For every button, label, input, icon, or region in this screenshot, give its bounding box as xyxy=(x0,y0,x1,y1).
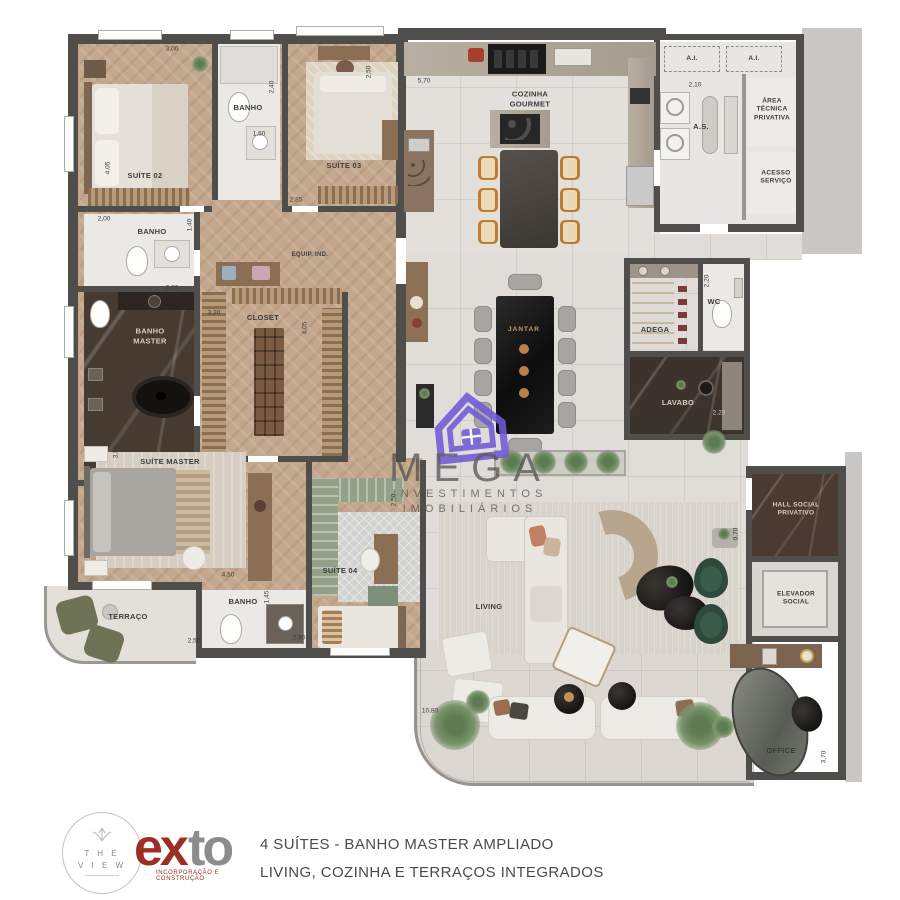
exto-logo: ex to INCORPORAÇÃO E CONSTRUÇÃO xyxy=(134,818,254,882)
suite02-headboard xyxy=(84,82,92,194)
closet-rack-right xyxy=(322,308,342,456)
label-adega: ADEGA xyxy=(641,325,670,335)
banhobottom-sink xyxy=(278,616,293,631)
dim-banhomaster-width: 2,60 xyxy=(166,285,179,292)
label-ai-2: A.I. xyxy=(748,55,759,63)
exto-logo-ex: ex xyxy=(134,818,186,878)
dim-banho02-width: 1,60 xyxy=(253,131,266,138)
door-suite03 xyxy=(292,206,318,212)
label-suite04: SUÍTE 04 xyxy=(323,566,358,576)
exto-subtitle: INCORPORAÇÃO E CONSTRUÇÃO xyxy=(156,870,254,882)
banhomaster-sink xyxy=(148,295,161,308)
adega-basin-2 xyxy=(660,266,670,276)
dining-chair-r3 xyxy=(558,370,576,396)
equip-item-2 xyxy=(252,266,270,280)
banhomaster-toilet xyxy=(90,300,110,328)
banholeft-sink xyxy=(164,246,180,262)
wall-elevator-bottom xyxy=(752,636,838,642)
dining-chair-l1 xyxy=(474,306,492,332)
living-console-vase-1 xyxy=(410,296,423,309)
kitchen-pot xyxy=(468,48,484,62)
label-equip: EQUIP. IND. xyxy=(292,252,329,260)
label-suite-master: SUÍTE MASTER xyxy=(140,457,199,467)
door-hall xyxy=(746,478,752,510)
kitchen-cooktop-burners xyxy=(505,118,535,140)
dim-banholeft-width: 2,00 xyxy=(98,216,111,223)
exterior-strip-right xyxy=(845,452,862,782)
label-cozinha: COZINHA GOURMET xyxy=(510,89,550,109)
caption-line-1: 4 SUÍTES - BANHO MASTER AMPLIADO xyxy=(260,836,554,853)
banho02-shower xyxy=(220,46,278,84)
window-master-bottom xyxy=(92,580,152,590)
adega-bottle-column xyxy=(678,284,687,344)
lavabo-basin xyxy=(698,380,714,396)
window-banho02-top xyxy=(230,30,274,40)
exterior-block-top-right xyxy=(802,28,862,254)
door-closet xyxy=(248,456,278,462)
kitchen-appliance-dots xyxy=(408,160,430,186)
wall-office-bottom xyxy=(746,772,846,780)
dim-wc-depth: 2,20 xyxy=(704,275,711,288)
terrace-table-2 xyxy=(608,682,636,710)
suite02-wardrobe xyxy=(88,188,190,206)
label-jantar: JANTAR xyxy=(508,326,540,334)
wall-closet-right xyxy=(342,292,348,462)
label-living: LIVING xyxy=(476,602,503,612)
window-suite02-top xyxy=(98,30,162,40)
dim-cozinha-width: 5,70 xyxy=(418,78,431,85)
wall-suite02-banho xyxy=(212,44,218,200)
dining-chair-l3 xyxy=(474,370,492,396)
planter-bush-3 xyxy=(564,450,588,474)
passage-service xyxy=(700,224,728,232)
wc-sink xyxy=(734,278,743,298)
service-washer-1-door xyxy=(666,98,684,116)
label-as: A.S. xyxy=(693,122,709,132)
living-side-table-plant xyxy=(718,528,730,540)
wall-adega-left xyxy=(624,258,630,440)
dining-chair-l2 xyxy=(474,338,492,364)
kitchen-sink xyxy=(554,48,592,66)
dining-chair-r4 xyxy=(558,402,576,428)
dim-office-depth: 3,70 xyxy=(821,751,828,764)
kitchen-chair-3 xyxy=(478,220,498,244)
dim-suite02-width: 3,00 xyxy=(166,46,179,53)
master-pillows xyxy=(93,472,111,552)
dim-banhobottom-width: 2,50 xyxy=(188,638,201,645)
planter-bush-1 xyxy=(500,450,524,474)
master-pouf xyxy=(182,546,206,570)
wall-areatecnica-divider xyxy=(742,74,746,220)
living-console-vase-2 xyxy=(412,318,422,328)
dim-suite04-depth: 2,50 xyxy=(391,494,398,507)
planter-bush-2 xyxy=(532,450,556,474)
label-area-tecnica: ÁREA TÉCNICA PRIVATIVA xyxy=(754,97,790,122)
kitchen-chair-2 xyxy=(478,188,498,212)
wall-wc-right xyxy=(744,258,750,440)
dining-decor-2 xyxy=(519,366,529,376)
the-view-rule xyxy=(85,875,119,876)
living-armchair-1-cushion xyxy=(700,566,722,592)
label-wc: WC xyxy=(707,297,720,307)
master-console xyxy=(248,473,272,581)
exto-logo-to: to xyxy=(188,818,231,878)
kitchen-dining-table xyxy=(500,150,558,248)
closet-island xyxy=(254,328,284,436)
kitchen-coffee-machine xyxy=(408,138,430,152)
kitchen-chair-1 xyxy=(478,156,498,180)
living-sofa-cushion xyxy=(530,586,562,622)
closet-rack-top xyxy=(232,288,342,304)
banhomaster-shower-2 xyxy=(88,398,103,411)
label-acesso-servico: ACESSO SERVIÇO xyxy=(760,170,791,187)
floor-corridor-service xyxy=(654,234,802,260)
master-console-item xyxy=(254,500,266,512)
dining-chair-r1 xyxy=(558,306,576,332)
window-left-2 xyxy=(64,306,74,358)
banhomaster-bathtub-drain xyxy=(156,392,166,400)
master-nightstand-2 xyxy=(84,560,108,576)
opening-corridor-living xyxy=(396,238,406,284)
wall-adega-wc xyxy=(698,264,703,352)
suite02-nightstand xyxy=(84,60,106,78)
living-armchair-2-cushion xyxy=(700,612,722,638)
the-view-logo: T H E V I E W xyxy=(62,812,142,894)
window-left-1 xyxy=(64,116,74,172)
dim-closet-depth: 4,05 xyxy=(302,322,309,335)
suite04-cabinet xyxy=(368,586,398,608)
label-banho-left: BANHO xyxy=(138,227,167,237)
caption-line-2: LIVING, COZINHA E TERRAÇOS INTEGRADOS xyxy=(260,864,604,881)
office-credenza-clock xyxy=(800,649,814,663)
kitchen-chair-6 xyxy=(560,220,580,244)
wall-rightcol-top xyxy=(746,466,844,474)
wall-bottom-rooms xyxy=(196,648,426,658)
door-banholeft xyxy=(194,250,200,276)
label-suite03: SUÍTE 03 xyxy=(327,161,362,171)
dim-terrace-width: 10,80 xyxy=(422,708,438,715)
suite04-bed-headboard xyxy=(398,606,406,648)
dim-banholeft-depth: 1,40 xyxy=(187,219,194,232)
banhomaster-shower-1 xyxy=(88,368,103,381)
suite04-bed-pillow xyxy=(322,610,342,644)
dim-lavabo-width: 2,20 xyxy=(713,410,726,417)
suite02-pillow-1 xyxy=(95,88,119,134)
dim-banho02-depth: 2,40 xyxy=(269,81,276,94)
label-banho-bottom: BANHO xyxy=(229,597,258,607)
lavabo-plant xyxy=(676,380,686,390)
living-coffee-plant xyxy=(666,576,678,588)
label-closet: CLOSET xyxy=(247,313,279,323)
dining-table xyxy=(496,296,554,434)
label-lavabo: LAVABO xyxy=(662,398,694,408)
master-throw xyxy=(176,470,210,554)
dim-as-width: 2,10 xyxy=(689,82,702,89)
wall-service-bottom xyxy=(654,224,804,232)
dining-chair-top xyxy=(508,274,542,290)
dim-master-width: 4,50 xyxy=(222,572,235,579)
label-banho-suite02: BANHO xyxy=(234,103,263,113)
label-elevador: ELEVADOR SOCIAL xyxy=(777,591,815,608)
dining-chair-l4 xyxy=(474,402,492,428)
the-view-laurel-icon xyxy=(91,825,113,843)
kitchen-stove-grates xyxy=(494,50,540,68)
suite03-dresser xyxy=(382,120,398,160)
the-view-line1: T H E xyxy=(63,849,141,858)
window-suite03-top xyxy=(296,26,384,36)
wall-elevator-top xyxy=(752,556,838,562)
service-cabinet xyxy=(724,96,738,154)
floor-plan-page: { "plan": { "rooms": [ {"label":"SUÍTE 0… xyxy=(0,0,900,900)
wall-rightcol-right xyxy=(838,466,846,780)
dining-chair-r2 xyxy=(558,338,576,364)
label-ai-1: A.I. xyxy=(686,55,697,63)
window-left-3 xyxy=(64,500,74,556)
closet-rack-left xyxy=(202,292,226,456)
suite04-chair xyxy=(360,548,380,572)
label-office: OFFICE xyxy=(766,746,795,756)
dim-suite04-width: 2,80 xyxy=(293,635,306,642)
door-banhomaster xyxy=(194,396,200,426)
label-terraco: TERRAÇO xyxy=(108,612,147,622)
living-console-2-plant xyxy=(419,388,430,399)
planter-bush-4 xyxy=(596,450,620,474)
banholeft-toilet xyxy=(126,246,148,276)
wall-banho-suite03 xyxy=(282,44,288,210)
suite03-pillows xyxy=(320,76,386,92)
wall-lavabo-bottom xyxy=(624,434,750,440)
living-plant-right xyxy=(702,430,726,454)
kitchen-chair-4 xyxy=(560,156,580,180)
master-nightstand-1 xyxy=(84,446,108,462)
office-credenza-frame xyxy=(762,648,777,665)
living-sofa-pillow-2 xyxy=(543,537,561,557)
terrace-bush-right-small xyxy=(712,716,734,738)
wall-service-right xyxy=(796,34,804,226)
equip-item-1 xyxy=(222,266,236,280)
dim-banhobottom-depth: 1,45 xyxy=(264,591,271,604)
kitchen-microwave xyxy=(630,88,650,104)
suite02-plant xyxy=(192,56,208,72)
lavabo-vanity xyxy=(722,362,742,430)
dim-suite02-depth: 4,05 xyxy=(105,162,112,175)
dim-closet-width: 3,30 xyxy=(208,310,221,317)
adega-basin-1 xyxy=(638,266,648,276)
terrace-bush-left-small xyxy=(466,690,490,714)
kitchen-fridge xyxy=(626,166,654,206)
dining-decor-1 xyxy=(519,344,529,354)
banhobottom-toilet xyxy=(220,614,242,644)
wall-suite04-right xyxy=(420,460,426,656)
dim-suite03-depth: 2,50 xyxy=(366,66,373,79)
dim-suite03-door: 2,85 xyxy=(290,197,303,204)
label-hall-social: HALL SOCIAL PRIVATIVO xyxy=(773,502,820,519)
dim-master-depth: 3,50 xyxy=(113,446,120,459)
suite03-wardrobe xyxy=(318,186,398,204)
wall-adega-lavabo xyxy=(630,351,744,357)
label-suite02: SUÍTE 02 xyxy=(128,171,163,181)
terrace-table-tray xyxy=(564,692,574,702)
terrace-sofa-1-pillow-2 xyxy=(509,702,529,720)
wall-service-top xyxy=(660,34,804,40)
service-washer-2-door xyxy=(666,134,684,152)
dim-hall-gap: 0,70 xyxy=(733,528,740,541)
suite04-sofa-left xyxy=(312,478,338,596)
dining-decor-3 xyxy=(519,388,529,398)
kitchen-chair-5 xyxy=(560,188,580,212)
suite03-desk xyxy=(318,46,370,60)
door-suite02 xyxy=(180,206,204,212)
wall-kitchen-top xyxy=(398,28,666,40)
the-view-line2: V I E W xyxy=(63,861,141,870)
label-banho-master: BANHO MASTER xyxy=(133,326,166,346)
living-pouf-1 xyxy=(441,630,493,677)
